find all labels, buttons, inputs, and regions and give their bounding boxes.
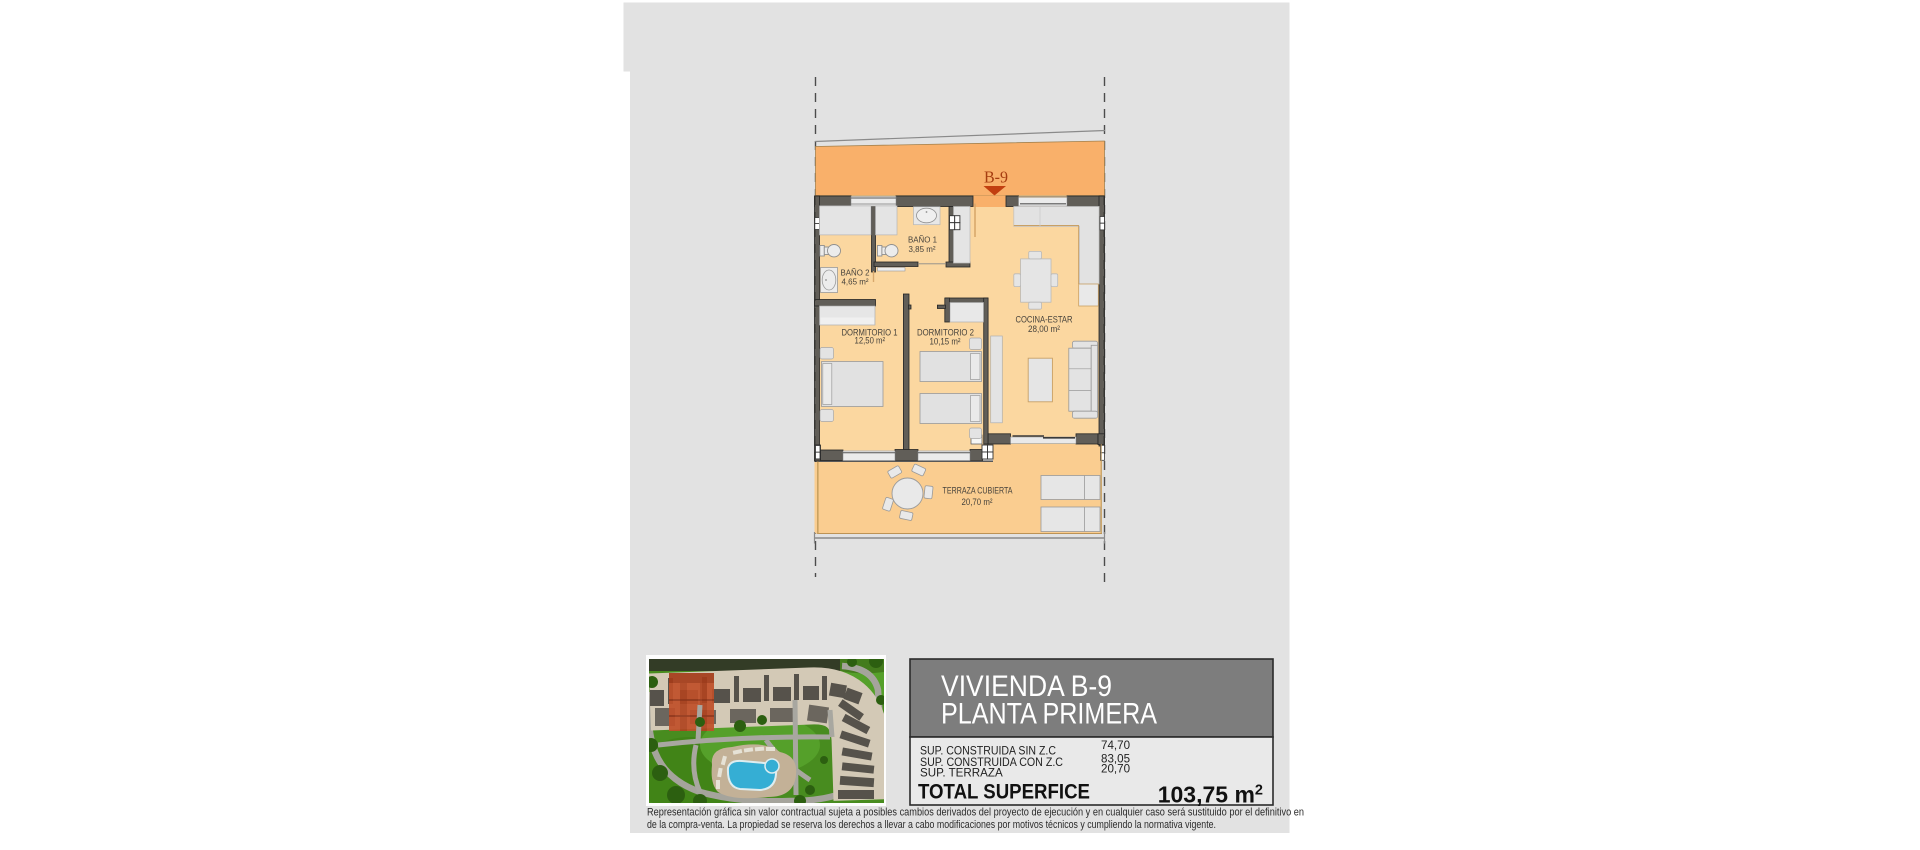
svg-text:3,85 m²: 3,85 m²	[909, 244, 936, 254]
svg-text:103,75 m2: 103,75 m2	[1158, 782, 1263, 808]
svg-text:10,15 m²: 10,15 m²	[930, 335, 961, 346]
svg-text:B-9: B-9	[984, 168, 1008, 187]
svg-text:TOTAL SUPERFICE: TOTAL SUPERFICE	[918, 780, 1090, 804]
svg-text:de la compra-venta. La propied: de la compra-venta. La propiedad se rese…	[647, 819, 1216, 831]
svg-text:28,00 m²: 28,00 m²	[1028, 323, 1060, 334]
svg-text:20,70 m²: 20,70 m²	[962, 497, 994, 508]
svg-text:12,50 m²: 12,50 m²	[855, 334, 886, 345]
svg-text:74,70: 74,70	[1101, 739, 1130, 752]
svg-text:20,70: 20,70	[1101, 763, 1130, 776]
svg-text:4,65 m²: 4,65 m²	[842, 276, 869, 286]
svg-text:Representación gráfica sin val: Representación gráfica sin valor contrac…	[647, 807, 1304, 819]
svg-text:SUP. TERRAZA: SUP. TERRAZA	[920, 767, 1003, 780]
svg-text:PLANTA PRIMERA: PLANTA PRIMERA	[941, 698, 1157, 731]
svg-text:TERRAZA CUBIERTA: TERRAZA CUBIERTA	[943, 486, 1013, 497]
